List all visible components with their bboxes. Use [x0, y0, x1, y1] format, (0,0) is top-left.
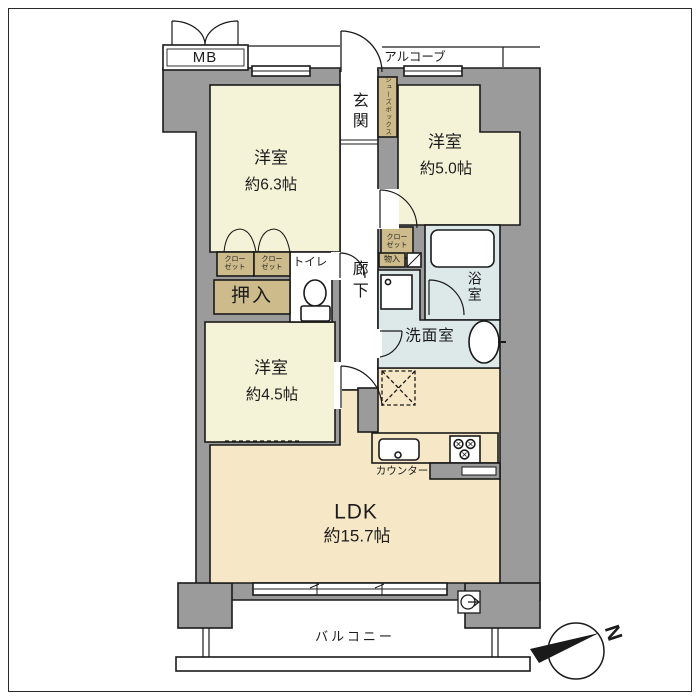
closet-b-label: クローゼット	[259, 256, 285, 272]
closet-a-label: クローゼット	[222, 256, 248, 272]
bedroom-4-5-name: 洋室	[254, 360, 288, 379]
bedroom-5-0-size: 約5.0帖	[420, 160, 473, 177]
mb-label: MB	[193, 50, 218, 67]
balcony-rail	[176, 657, 530, 671]
pillar-bottom-left	[178, 583, 232, 628]
window-top-6-3	[252, 66, 310, 76]
counter-label: カウンター	[376, 466, 429, 478]
floor-plan: MB アルコーブ 玄関 シューズボックス 廊下 洋室 約6.3帖 洋室 約5.0…	[0, 0, 700, 700]
bedroom-6-3-floor	[210, 85, 340, 252]
compass	[530, 623, 604, 679]
bedroom-5-0-name: 洋室	[428, 134, 462, 153]
toilet-label: トイレ	[293, 257, 328, 270]
faucet-icon	[458, 591, 480, 613]
bathtub-icon	[431, 230, 494, 267]
shoe-box-label: シューズボックス	[383, 76, 390, 136]
window-ldk-balcony	[253, 583, 447, 595]
bedroom-6-3-size: 約6.3帖	[245, 176, 298, 193]
ldk-size: 約15.7帖	[323, 528, 390, 547]
balcony-label: バルコニー	[315, 630, 395, 644]
bedroom-4-5-size: 約4.5帖	[246, 386, 299, 403]
monoire-label: 物入	[384, 256, 400, 265]
stove-icon	[450, 436, 480, 463]
washroom-label: 洗面室	[405, 327, 455, 344]
corridor-label: 廊下	[349, 260, 367, 304]
wall-stub-kitchen	[358, 388, 378, 432]
bedroom-4-5-floor	[205, 322, 335, 442]
oshiire-label: 押入	[231, 287, 273, 308]
bedroom-6-3-name: 洋室	[254, 150, 288, 169]
counter-hatch-wall	[430, 463, 500, 479]
washing-machine-icon	[381, 275, 412, 309]
bath-label: 浴室	[466, 271, 481, 303]
ldk-name: LDK	[334, 500, 378, 523]
window-top-5-0	[404, 66, 462, 76]
alcove-label: アルコーブ	[384, 51, 445, 65]
closet-5-0-label: クローゼット	[384, 234, 410, 250]
entrance-label: 玄関	[349, 92, 367, 132]
